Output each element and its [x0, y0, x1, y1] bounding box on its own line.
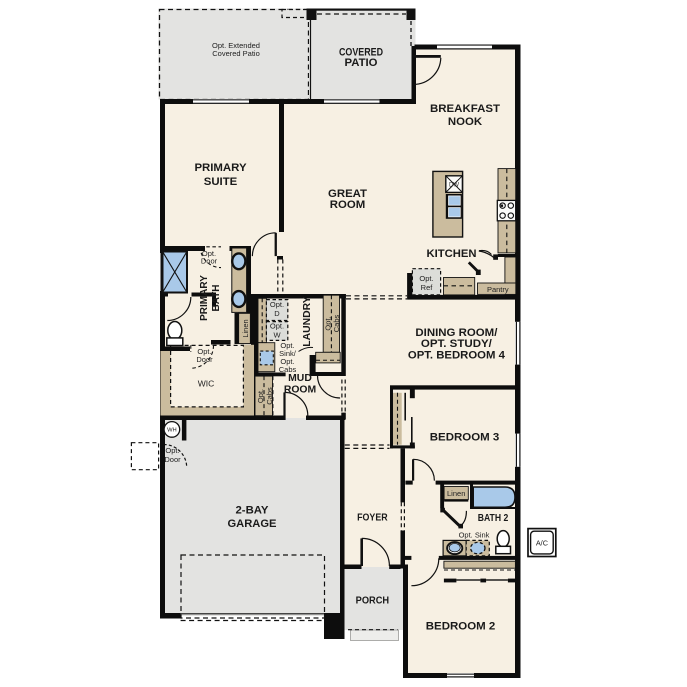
- svg-text:Linen: Linen: [447, 489, 465, 498]
- svg-text:Opt.: Opt.: [270, 300, 284, 309]
- svg-text:Door: Door: [164, 455, 181, 464]
- svg-text:Opt.: Opt.: [270, 322, 284, 331]
- svg-text:FOYER: FOYER: [357, 513, 388, 524]
- svg-text:Pantry: Pantry: [487, 285, 509, 294]
- svg-text:DINING ROOM/: DINING ROOM/: [415, 327, 498, 339]
- svg-text:LAUNDRY: LAUNDRY: [302, 296, 313, 346]
- svg-text:PORCH: PORCH: [356, 596, 390, 607]
- svg-text:BEDROOM 2: BEDROOM 2: [426, 620, 496, 632]
- svg-text:NOOK: NOOK: [448, 116, 483, 128]
- svg-text:OPT. BEDROOM 4: OPT. BEDROOM 4: [408, 349, 506, 361]
- svg-text:PATIO: PATIO: [345, 57, 378, 69]
- svg-text:Door: Door: [196, 355, 213, 364]
- svg-text:WH: WH: [167, 428, 177, 434]
- svg-text:ROOM: ROOM: [330, 199, 365, 211]
- svg-text:Linen: Linen: [241, 319, 250, 337]
- svg-text:Ref: Ref: [421, 283, 434, 292]
- svg-text:PRIMARY: PRIMARY: [199, 275, 210, 321]
- svg-text:Cabs: Cabs: [332, 314, 341, 332]
- svg-text:GARAGE: GARAGE: [228, 518, 277, 530]
- svg-text:KITCHEN: KITCHEN: [427, 248, 477, 260]
- svg-text:BREAKFAST: BREAKFAST: [430, 103, 500, 115]
- svg-text:W: W: [273, 331, 281, 340]
- svg-text:ROOM: ROOM: [284, 384, 316, 395]
- svg-text:GREAT: GREAT: [328, 188, 367, 200]
- svg-text:WIC: WIC: [198, 379, 215, 389]
- svg-text:DW: DW: [449, 183, 459, 189]
- svg-text:SUITE: SUITE: [204, 176, 238, 188]
- svg-text:A/C: A/C: [536, 538, 548, 547]
- svg-text:PRIMARY: PRIMARY: [194, 162, 247, 174]
- svg-text:MUD: MUD: [288, 373, 312, 384]
- svg-text:BEDROOM 3: BEDROOM 3: [430, 432, 500, 444]
- svg-text:2-BAY: 2-BAY: [236, 504, 269, 516]
- svg-text:Opt.: Opt.: [419, 274, 433, 283]
- svg-text:Covered Patio: Covered Patio: [212, 49, 260, 58]
- svg-text:Opt. Sink: Opt. Sink: [459, 531, 490, 540]
- svg-text:Opt.: Opt.: [256, 389, 265, 403]
- svg-text:BATH: BATH: [211, 284, 222, 311]
- svg-text:OPT. STUDY/: OPT. STUDY/: [421, 338, 493, 350]
- svg-text:Cabs: Cabs: [265, 387, 274, 405]
- svg-text:Opt.: Opt.: [165, 446, 179, 455]
- svg-text:BATH 2: BATH 2: [478, 513, 509, 524]
- svg-text:D: D: [274, 309, 280, 318]
- svg-text:Cabs: Cabs: [279, 365, 297, 374]
- svg-text:Door: Door: [201, 257, 218, 266]
